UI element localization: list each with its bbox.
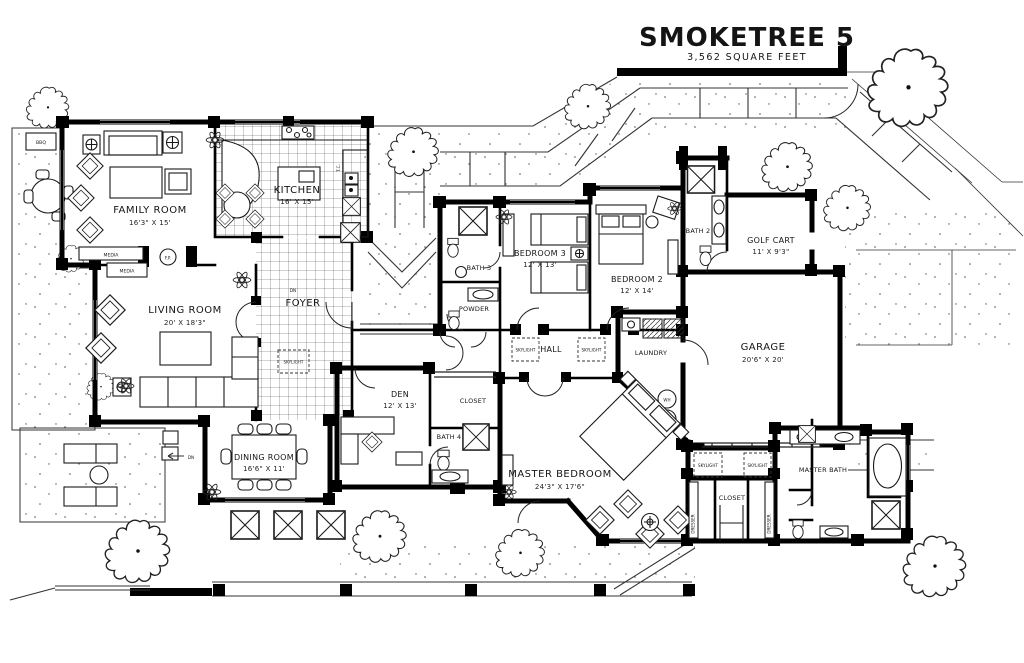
den-closet-label: CLOSET [460, 397, 486, 405]
bbq-counter: BBQ [26, 133, 56, 150]
dresser-label-left: DRESSER [691, 514, 696, 533]
garage-label: GARAGE [741, 342, 786, 353]
tree [353, 511, 406, 562]
site-hardscape: BBQ [10, 46, 1023, 600]
dn-label-dining: DN [188, 455, 194, 460]
skylight-label-hall-2: SKYLIGHT [582, 348, 602, 353]
tree [868, 49, 948, 126]
planter-box [274, 511, 302, 539]
dresser-label-right: DRESSER [767, 514, 772, 533]
media-label-2: MEDIA [120, 269, 136, 275]
planter-box [317, 511, 345, 539]
golf-cart-label: GOLF CART [747, 236, 795, 245]
tree [105, 520, 169, 582]
bath2-label: BATH 2 [686, 227, 711, 235]
garage-dims: 20'6" X 20' [742, 356, 784, 364]
garage-planter [799, 426, 816, 443]
bedroom2-furniture [596, 196, 680, 274]
den-dims: 12' X 13' [383, 402, 417, 410]
title-block: SMOKETREE 5 3,562 SQUARE FEET [639, 23, 855, 63]
master-bedroom-label: MASTER BEDROOM [508, 469, 612, 480]
planter-box [231, 511, 259, 539]
media-label: MEDIA [104, 253, 120, 259]
bedroom2-dims: 12' X 14' [620, 287, 654, 295]
master-closet-label: CLOSET [719, 494, 745, 502]
den-furniture [341, 417, 422, 465]
bedroom3-label: BEDROOM 3 [514, 249, 566, 258]
tc-label: T.C. [336, 164, 341, 172]
dining-room-label: DINING ROOM [234, 453, 294, 462]
tree [496, 530, 545, 577]
tree [762, 143, 813, 192]
tree [565, 84, 611, 128]
foyer-label: FOYER [286, 298, 321, 309]
family-room-dims: 16'3" X 15' [129, 219, 171, 227]
bbq-label: BBQ [36, 140, 46, 146]
skylight-label-closet-2: SKYLIGHT [748, 463, 768, 468]
skylight-label-hall-1: SKYLIGHT [516, 348, 536, 353]
dn-label-foyer: DN [290, 288, 296, 293]
laundry-label: LAUNDRY [635, 349, 667, 357]
family-room-label: FAMILY ROOM [113, 205, 187, 216]
tree [903, 536, 966, 596]
powder-label: POWDER [459, 305, 490, 313]
bedroom2-label: BEDROOM 2 [611, 275, 663, 284]
hall-label: HALL [540, 345, 562, 354]
master-bedroom-dims: 24'3" X 17'6" [535, 483, 585, 491]
golf-cart-dims: 11' X 9'3" [752, 248, 789, 256]
fireplace-label: F.P. [165, 256, 171, 261]
bath3-label: BATH 3 [467, 264, 492, 272]
bath4-label: BATH 4 [437, 433, 462, 441]
living-room-label: LIVING ROOM [148, 305, 222, 316]
floor-plan-page: BBQ [0, 0, 1024, 663]
skylight-label-foyer: SKYLIGHT [284, 360, 304, 365]
master-bath-label: MASTER BATH [799, 466, 847, 474]
living-room-dims: 20' X 18'3" [164, 319, 206, 327]
bedroom3-dims: 12' X 13' [523, 261, 557, 269]
den-label: DEN [391, 390, 409, 399]
kitchen-dims: 16' X 15' [280, 198, 314, 206]
plan-title: SMOKETREE 5 [639, 23, 855, 53]
tree [824, 185, 871, 230]
plan-area: 3,562 SQUARE FEET [687, 52, 807, 63]
kitchen-label: KITCHEN [274, 185, 321, 196]
dining-room-dims: 16'6" X 11' [243, 465, 285, 473]
skylight-label-closet-1: SKYLIGHT [698, 463, 718, 468]
water-heater-label: WH [663, 398, 670, 403]
floor-plan-drawing: BBQ [0, 0, 1024, 663]
